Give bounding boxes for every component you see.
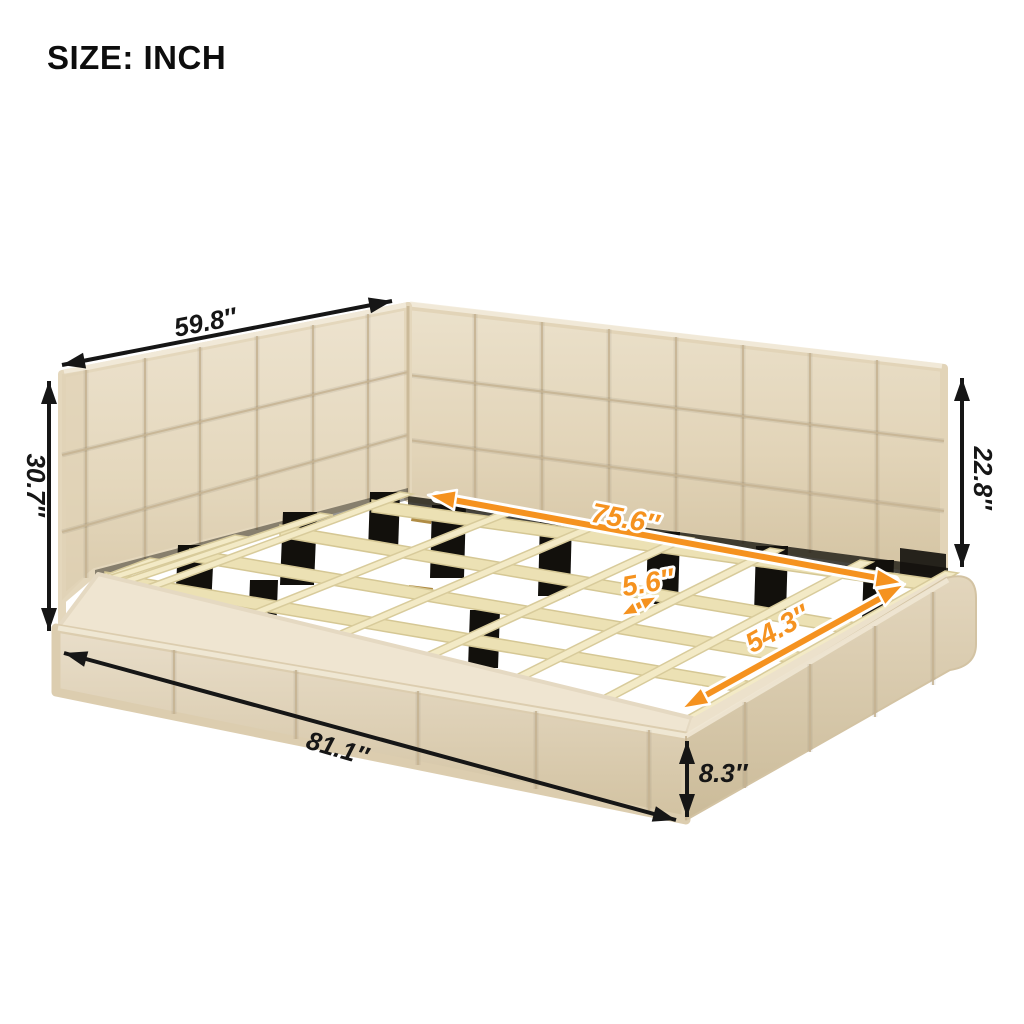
dim-headboard-height-label: 30.7″ xyxy=(21,453,51,518)
bed-illustration xyxy=(56,304,976,820)
dim-backrest-height: 22.8″ xyxy=(962,378,998,567)
page-title: SIZE: INCH xyxy=(47,39,226,76)
dim-headboard-height: 30.7″ xyxy=(21,381,51,631)
dim-base-height-label: 8.3″ xyxy=(699,758,749,788)
dim-backrest-height-label: 22.8″ xyxy=(968,445,998,511)
dim-headboard-width-label: 59.8″ xyxy=(171,301,240,343)
headboard-side-strip xyxy=(62,370,86,600)
daybed-diagram-svg: 59.8″ 30.7″ 22.8″ 81.1″ 8.3″ 75.6″ xyxy=(0,0,1024,1024)
product-dimension-diagram: 59.8″ 30.7″ 22.8″ 81.1″ 8.3″ 75.6″ xyxy=(0,0,1024,1024)
dim-slat-spacing: 5.6″ xyxy=(619,562,677,616)
